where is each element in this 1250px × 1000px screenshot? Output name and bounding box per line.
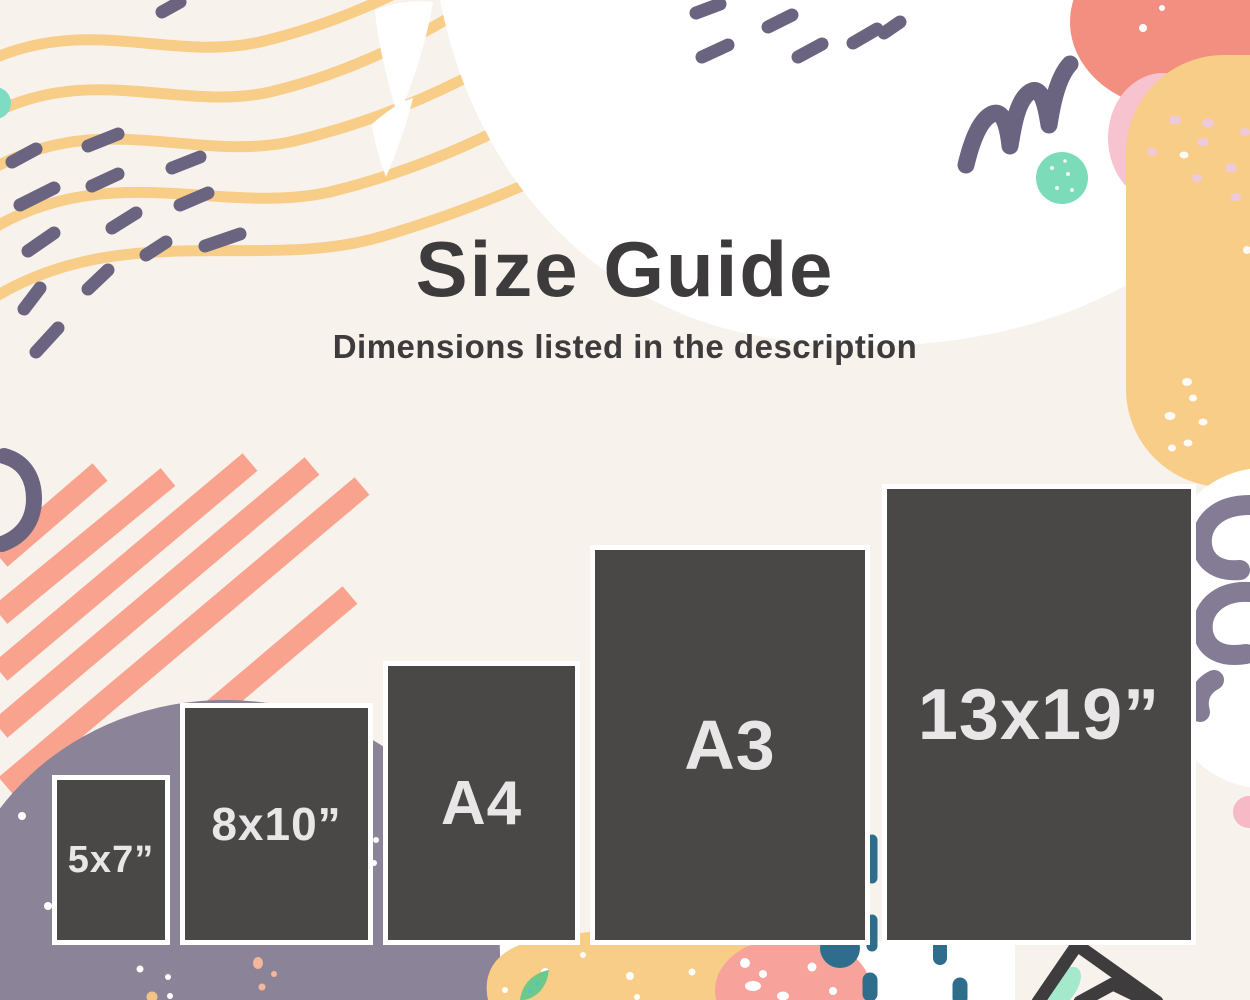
size-panel-8x10: 8x10” (180, 703, 373, 945)
page-title: Size Guide (0, 230, 1250, 308)
pink-dot-right (1233, 796, 1250, 828)
size-label-a3: A3 (684, 705, 775, 785)
chevron-triangles (1031, 945, 1157, 1000)
teal-crescent (0, 87, 11, 119)
size-label-5x7: 5x7” (68, 839, 154, 882)
size-guide-figure: Size Guide Dimensions listed in the desc… (0, 0, 1250, 1000)
size-panel-5x7: 5x7” (52, 775, 170, 945)
size-label-a4: A4 (441, 768, 522, 839)
size-label-13x19: 13x19” (918, 674, 1160, 756)
teal-circle (1036, 152, 1088, 204)
white-leaf-shapes (372, 1, 433, 177)
size-panel-13x19: 13x19” (882, 484, 1196, 945)
size-label-8x10: 8x10” (211, 797, 341, 851)
purple-ring-fragment (2, 456, 34, 544)
page-subtitle: Dimensions listed in the description (0, 330, 1250, 363)
size-panel-a3: A3 (590, 545, 870, 945)
size-panel-a4: A4 (383, 661, 580, 945)
